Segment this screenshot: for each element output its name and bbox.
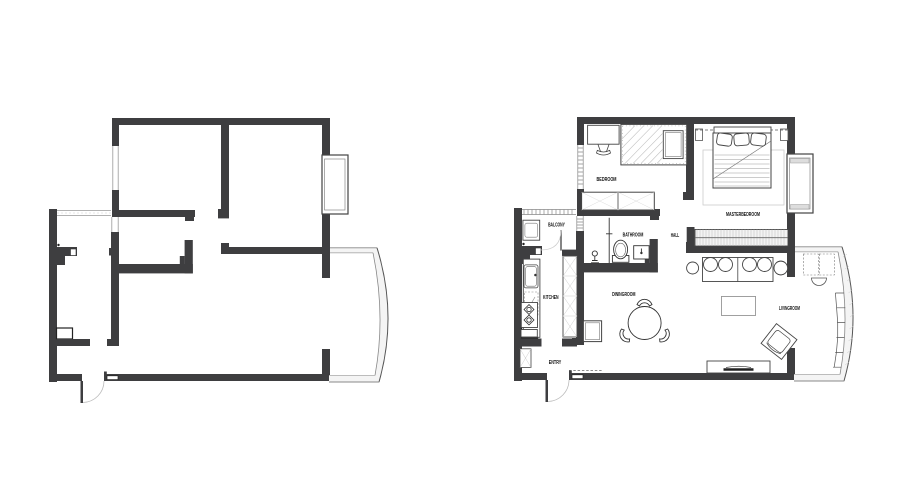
svg-text:BALCONY: BALCONY: [548, 223, 565, 229]
svg-text:HALL: HALL: [671, 233, 680, 239]
svg-text:DININGROOM: DININGROOM: [612, 292, 636, 298]
svg-text:LIVINGROOM: LIVINGROOM: [779, 306, 800, 312]
svg-text:BEDROOM: BEDROOM: [597, 177, 617, 183]
svg-text:MASTERBEDROOM: MASTERBEDROOM: [726, 212, 760, 218]
svg-text:KITCHEN: KITCHEN: [543, 295, 559, 301]
svg-text:BATHROOM: BATHROOM: [623, 232, 644, 238]
svg-text:ENTRY: ENTRY: [549, 360, 562, 366]
